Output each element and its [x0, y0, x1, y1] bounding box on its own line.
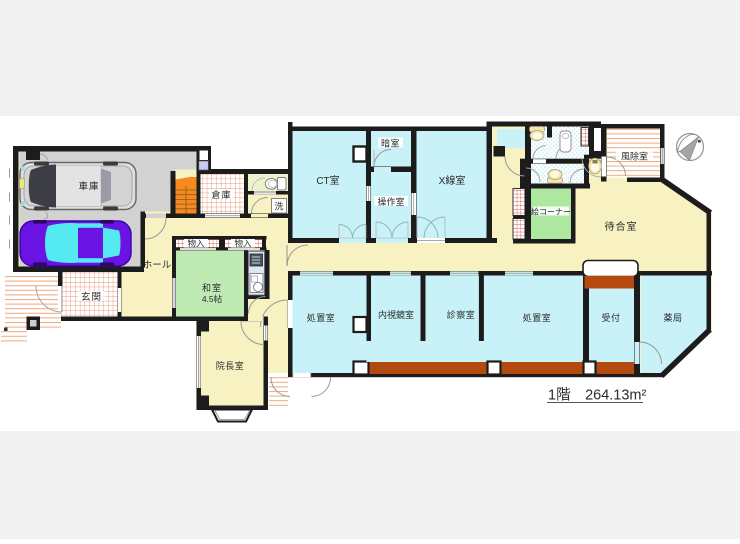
svg-text:倉庫: 倉庫 [211, 189, 231, 200]
svg-text:暗室: 暗室 [381, 138, 400, 149]
svg-text:内視鏡室: 内視鏡室 [378, 309, 414, 320]
svg-text:和室: 和室 [202, 282, 222, 293]
svg-text:ホール: ホール [143, 260, 172, 271]
svg-text:洗: 洗 [274, 201, 283, 212]
svg-text:薬局: 薬局 [663, 312, 682, 323]
svg-text:待合室: 待合室 [605, 220, 638, 233]
svg-text:診察室: 診察室 [447, 309, 476, 320]
svg-text:玄関: 玄関 [81, 291, 102, 303]
svg-text:院長室: 院長室 [216, 360, 245, 371]
svg-text:物入: 物入 [187, 239, 205, 249]
svg-text:操作室: 操作室 [377, 196, 404, 207]
svg-text:1階 264.13m²: 1階 264.13m² [548, 387, 646, 404]
svg-text:処置室: 処置室 [307, 312, 336, 323]
svg-text:受付: 受付 [601, 312, 620, 323]
svg-text:車庫: 車庫 [78, 181, 99, 193]
svg-text:物入: 物入 [234, 239, 252, 249]
svg-text:CT室: CT室 [316, 174, 339, 187]
svg-text:絵コーナー: 絵コーナー [531, 207, 571, 217]
svg-text:4.5帖: 4.5帖 [202, 294, 223, 304]
svg-text:X線室: X線室 [439, 174, 466, 187]
svg-text:処置室: 処置室 [523, 312, 552, 323]
svg-text:風除室: 風除室 [621, 151, 648, 162]
